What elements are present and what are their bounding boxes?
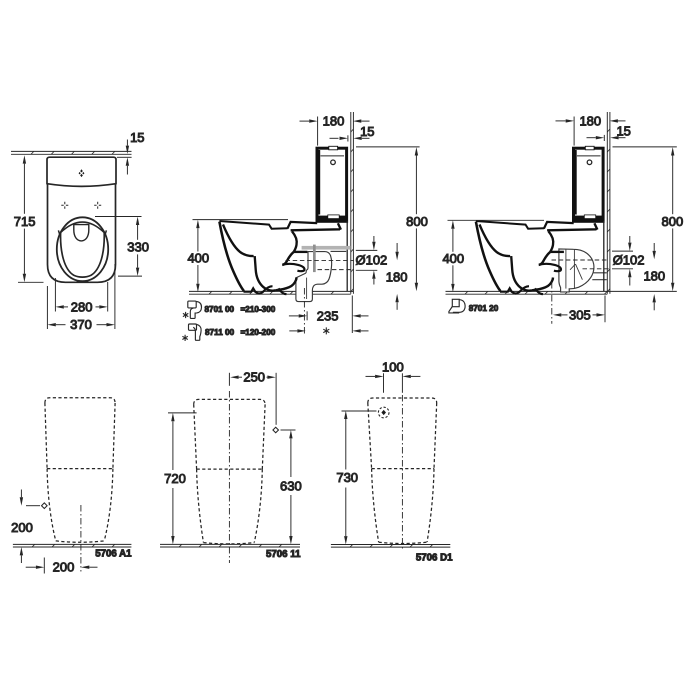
svg-text:5706 A1: 5706 A1 xyxy=(95,549,132,560)
svg-text:8711 00: 8711 00 xyxy=(205,328,235,337)
svg-text:330: 330 xyxy=(127,240,149,255)
svg-text:200: 200 xyxy=(11,520,33,535)
svg-text:730: 730 xyxy=(336,470,358,485)
svg-text:15: 15 xyxy=(360,124,374,139)
svg-text:800: 800 xyxy=(662,214,684,229)
svg-text:370: 370 xyxy=(70,317,92,332)
svg-text:8701 20: 8701 20 xyxy=(469,304,499,313)
svg-text:180: 180 xyxy=(386,269,408,284)
svg-text:400: 400 xyxy=(187,251,209,266)
svg-text:15: 15 xyxy=(616,123,630,138)
svg-text:180: 180 xyxy=(323,114,345,129)
svg-text:720: 720 xyxy=(164,471,186,486)
svg-text:305: 305 xyxy=(569,307,591,322)
svg-text:280: 280 xyxy=(71,299,93,314)
svg-text:180: 180 xyxy=(579,113,601,128)
svg-text:180: 180 xyxy=(643,268,665,283)
svg-text:=120-200: =120-200 xyxy=(241,328,276,337)
svg-text:100: 100 xyxy=(382,360,404,375)
svg-text:235: 235 xyxy=(317,308,339,323)
svg-text:400: 400 xyxy=(442,251,464,266)
svg-text:15: 15 xyxy=(130,130,144,145)
svg-text:5706 11: 5706 11 xyxy=(266,549,301,560)
svg-text:200: 200 xyxy=(53,560,75,575)
svg-text:=210-300: =210-300 xyxy=(241,305,276,314)
svg-text:Ø102: Ø102 xyxy=(613,253,645,268)
svg-text:5706 D1: 5706 D1 xyxy=(416,553,453,564)
svg-text:800: 800 xyxy=(406,214,428,229)
svg-text:715: 715 xyxy=(14,214,36,229)
svg-text:630: 630 xyxy=(280,478,302,493)
svg-text:250: 250 xyxy=(243,370,265,385)
svg-text:8701 00: 8701 00 xyxy=(205,305,235,314)
svg-text:Ø102: Ø102 xyxy=(355,253,387,268)
